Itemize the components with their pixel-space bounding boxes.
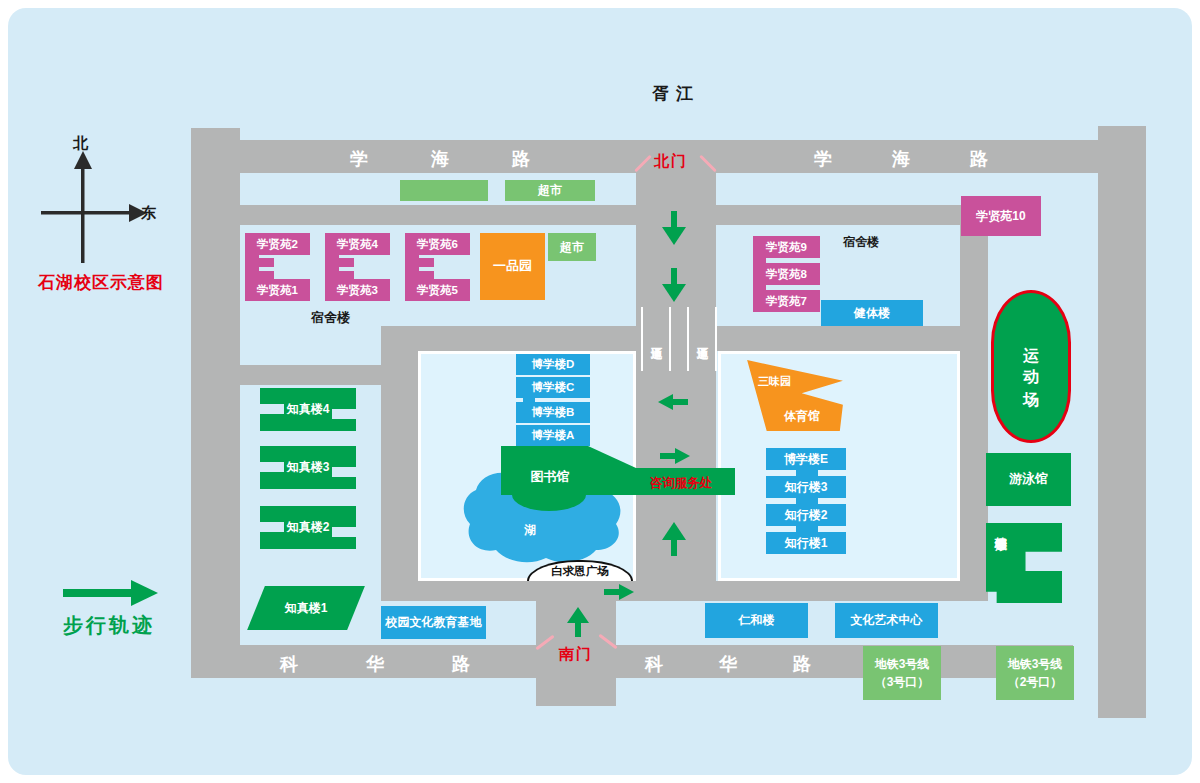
- road-inner-vert-right: [960, 205, 988, 601]
- road-label-xuehai-west: 学海路: [350, 147, 593, 171]
- road-label-kehua-east: 科华路: [645, 652, 867, 676]
- building-zhizhenlou1-label: 知真楼1: [285, 601, 328, 616]
- campus-map-page: 学海路 学海路 科华路 科华路 北门 南门 胥江 北 东 石湖校区示意图 步行轨…: [0, 0, 1200, 783]
- building-xuexianyuan9: 学贤苑9: [753, 236, 820, 258]
- underpass-label-west: 地下通道: [641, 307, 671, 371]
- building-yipinyuan: 一品园: [480, 233, 545, 300]
- metro-exit-2: 地铁3号线 （2号口）: [996, 646, 1074, 700]
- building-zhixinglou3: 知行楼3: [766, 476, 846, 498]
- road-left-ring: [191, 128, 240, 678]
- dorm-area-label-east: 宿舍楼: [843, 234, 879, 251]
- road-left-band: [191, 365, 381, 385]
- library-and-lake: 图书馆 咨询服务处 湖: [458, 438, 748, 568]
- building-stadium: 运动场: [991, 290, 1071, 443]
- compass-north-label: 北: [73, 134, 88, 153]
- legend-walk-arrow-icon: [63, 580, 158, 606]
- walk-arrow-up-1: [661, 522, 687, 556]
- road-inner-strip-north: [240, 205, 960, 225]
- lake-label: 湖: [524, 523, 536, 537]
- walk-arrow-right-1: [660, 448, 690, 464]
- library-wedge: [588, 446, 636, 468]
- compass: 北 东: [33, 133, 183, 273]
- building-zhixinglou1: 知行楼1: [766, 532, 846, 554]
- metro-exit-2-exit: （2号口）: [1008, 675, 1063, 690]
- road-label-kehua-west: 科华路: [280, 652, 538, 676]
- building-jiantilou: 健体楼: [821, 300, 923, 326]
- river-label: 胥江: [652, 82, 700, 105]
- building-xuexianyuan2: 学贤苑2: [245, 233, 310, 255]
- legend-walk-label: 步行轨迹: [63, 612, 155, 639]
- building-gym-complex: 三味园 体育馆: [743, 357, 846, 434]
- building-xuexianyuan-9-8-7: 学贤苑9 学贤苑8 学贤苑7: [753, 236, 820, 312]
- building-xuexianyuan5: 学贤苑5: [405, 279, 470, 301]
- building-boxuelou-b: 博学楼B: [516, 402, 590, 423]
- walk-arrow-down-1: [661, 211, 687, 245]
- walk-arrow-down-2: [661, 268, 687, 302]
- building-boxuelou-c: 博学楼C: [516, 377, 590, 398]
- compass-east-label: 东: [141, 204, 156, 223]
- building-xuexianyuan6: 学贤苑6: [405, 233, 470, 255]
- road-right-ring: [1098, 126, 1146, 718]
- road-label-xuehai-east: 学海路: [814, 147, 1048, 171]
- building-zhizhenlou1: 知真楼1: [247, 586, 365, 630]
- building-xuexianyuan-2-1: 学贤苑2 学贤苑1: [245, 233, 310, 301]
- north-gate-label: 北门: [654, 152, 688, 171]
- building-xuexianyuan10: 学贤苑10: [961, 196, 1041, 236]
- south-gate-label: 南门: [559, 645, 593, 664]
- metro-exit-3-line: 地铁3号线: [875, 657, 930, 672]
- metro-exit-2-line: 地铁3号线: [1008, 657, 1063, 672]
- info-desk-label: 咨询服务处: [650, 476, 713, 490]
- building-zhizhenlou3: 知真楼3: [260, 446, 356, 489]
- building-renhelou: 仁和楼: [705, 603, 808, 638]
- building-xuexianyuan3: 学贤苑3: [325, 279, 390, 301]
- building-supermarket-north: 超市: [505, 180, 595, 201]
- building-xuexianyuan-6-5: 学贤苑6 学贤苑5: [405, 233, 470, 301]
- walk-arrow-up-2: [566, 607, 590, 637]
- building-stadium-label: 运动场: [1021, 334, 1041, 400]
- dorm-area-label-west: 宿舍楼: [311, 309, 350, 327]
- building-boxuelou-d: 博学楼D: [516, 354, 590, 375]
- building-xuexianyuan-4-3: 学贤苑4 学贤苑3: [325, 233, 390, 301]
- road-inner-south: [381, 581, 988, 601]
- map-title: 石湖校区示意图: [38, 271, 164, 294]
- underpass-label-east: 地下通道: [687, 307, 717, 371]
- building-zhizhenlou2: 知真楼2: [260, 506, 356, 549]
- metro-exit-3-exit: （3号口）: [875, 675, 930, 690]
- road-inner-vert-left: [381, 326, 418, 601]
- building-art-center: 文化艺术中心: [835, 603, 938, 638]
- metro-exit-3: 地铁3号线 （3号口）: [863, 646, 941, 700]
- building-unlabeled-green: [400, 180, 488, 201]
- building-zhizhenlou4: 知真楼4: [260, 388, 356, 431]
- building-zhixinglou2: 知行楼2: [766, 504, 846, 526]
- compass-icon: [33, 133, 183, 273]
- building-tiyuguan-label: 体育馆: [784, 408, 820, 425]
- building-health-center: 健康管理中心: [986, 523, 1062, 603]
- building-boxuelou-e: 博学楼E: [766, 448, 846, 470]
- walk-arrow-left: [658, 394, 688, 410]
- building-culture-edu-base: 校园文化教育基地: [381, 606, 486, 639]
- building-xuexianyuan1: 学贤苑1: [245, 279, 310, 301]
- building-natatorium: 游泳馆: [986, 453, 1071, 506]
- building-sanweiyuan-label: 三味园: [758, 374, 791, 389]
- road-mid-band: [381, 326, 988, 351]
- building-xuexianyuan7: 学贤苑7: [753, 290, 820, 312]
- building-xuexianyuan4: 学贤苑4: [325, 233, 390, 255]
- shihu-campus-map: 学海路 学海路 科华路 科华路 北门 南门 胥江 北 东 石湖校区示意图 步行轨…: [8, 8, 1192, 775]
- building-xuexianyuan8: 学贤苑8: [753, 263, 820, 285]
- building-supermarket-mid: 超市: [548, 233, 596, 261]
- library-label: 图书馆: [531, 469, 570, 484]
- walk-arrow-right-2: [604, 584, 634, 600]
